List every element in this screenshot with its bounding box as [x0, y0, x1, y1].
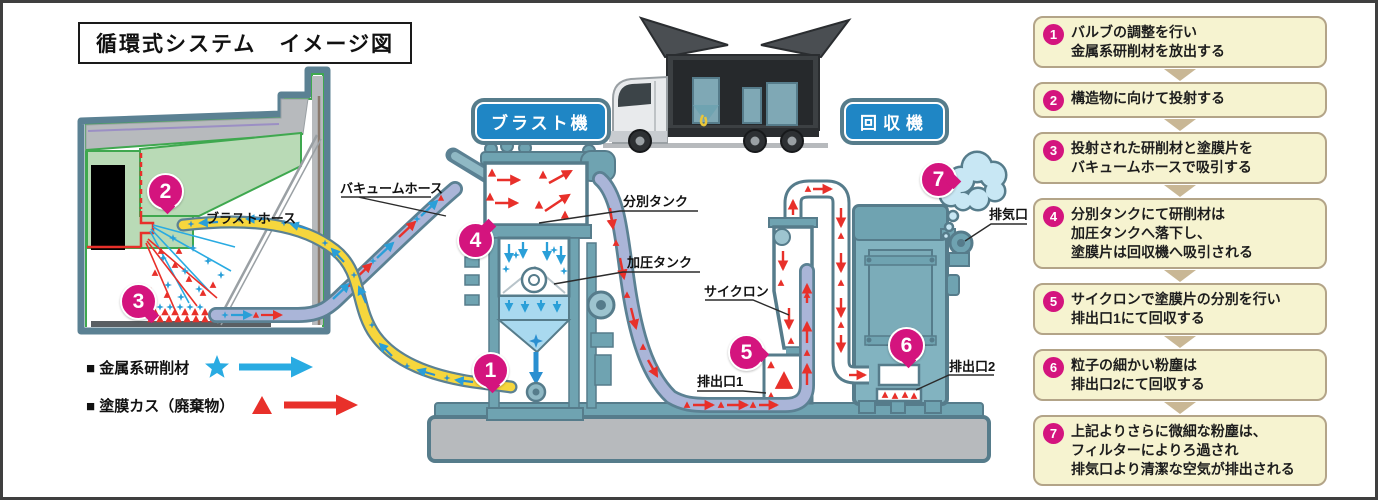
step-number-badge: 6	[1043, 357, 1064, 378]
blasted-structure	[81, 70, 327, 331]
process-steps-panel: 1 バルブの調整を行い 金属系研削材を放出する 2 構造物に向けて投射する 3 …	[1033, 16, 1327, 486]
step-number-badge: 5	[1043, 291, 1064, 312]
label-separation-tank: 分別タンク	[623, 194, 688, 209]
step-number-badge: 4	[1043, 206, 1064, 227]
step-number-badge: 2	[1043, 90, 1064, 111]
process-step-3: 3 投射された研削材と塗膜片を バキュームホースで吸引する	[1033, 132, 1327, 184]
step-text: 構造物に向けて投射する	[1071, 89, 1225, 111]
star-and-arrow-icon	[203, 353, 328, 381]
diagram-canvas: 循環式システム イメージ図 ブラスト機 回収機 バキュームホース ブラストホース…	[0, 0, 1378, 500]
process-step-4: 4 分別タンクにて研削材は 加圧タンクへ落下し、 塗膜片は回収機へ吸引される	[1033, 198, 1327, 269]
down-arrow-icon	[1164, 402, 1196, 414]
process-step-1: 1 バルブの調整を行い 金属系研削材を放出する	[1033, 16, 1327, 68]
label-outlet-2: 排出口2	[949, 359, 995, 374]
label-vacuum-hose: バキュームホース	[340, 181, 443, 196]
step-number-badge: 1	[1043, 24, 1064, 45]
blast-machine-plate: ブラスト機	[475, 102, 607, 141]
down-arrow-icon	[1164, 119, 1196, 131]
down-arrow-icon	[1164, 69, 1196, 81]
legend-abrasive: ■ 金属系研削材	[86, 353, 328, 381]
step-text: バルブの調整を行い 金属系研削材を放出する	[1071, 23, 1225, 61]
process-step-7: 7 上記よりさらに微細な粉塵は、 フィルターによりろ過され 排気口より清潔な空気…	[1033, 415, 1327, 486]
diagram-marker-6: 6	[888, 327, 925, 364]
diagram-marker-7: 7	[920, 161, 957, 198]
step-text: 粒子の細かい粉塵は 排出口2にて回収する	[1071, 356, 1205, 394]
equipment-truck	[603, 18, 849, 152]
step-text: サイクロンで塗膜片の分別を行い 排出口1にて回収する	[1071, 290, 1281, 328]
diagram-marker-2: 2	[147, 173, 184, 210]
page-title: 循環式システム イメージ図	[78, 22, 412, 64]
process-step-2: 2 構造物に向けて投射する	[1033, 82, 1327, 118]
system-diagram-art	[3, 3, 1033, 500]
outlet-2-box	[877, 365, 921, 401]
label-exhaust-port: 排気口	[989, 207, 1028, 222]
step-number-badge: 7	[1043, 423, 1064, 444]
process-step-5: 5 サイクロンで塗膜片の分別を行い 排出口1にて回収する	[1033, 283, 1327, 335]
triangle-and-arrow-icon	[248, 391, 373, 419]
diagram-marker-1: 1	[472, 352, 509, 389]
step-text: 分別タンクにて研削材は 加圧タンクへ落下し、 塗膜片は回収機へ吸引される	[1071, 205, 1253, 262]
down-arrow-icon	[1164, 185, 1196, 197]
diagram-marker-4: 4	[457, 222, 494, 259]
step-text: 上記よりさらに微細な粉塵は、 フィルターによりろ過され 排気口より清潔な空気が排…	[1071, 422, 1295, 479]
label-blast-hose: ブラストホース	[206, 211, 296, 226]
process-step-6: 6 粒子の細かい粉塵は 排出口2にて回収する	[1033, 349, 1327, 401]
label-outlet-1: 排出口1	[697, 374, 743, 389]
down-arrow-icon	[1164, 336, 1196, 348]
legend-waste-label: ■ 塗膜カス（廃棄物）	[86, 395, 234, 416]
diagram-marker-5: 5	[728, 334, 765, 371]
diagram-marker-3: 3	[120, 283, 157, 320]
step-number-badge: 3	[1043, 140, 1064, 161]
step-text: 投射された研削材と塗膜片を バキュームホースで吸引する	[1071, 139, 1253, 177]
recovery-machine-plate: 回収機	[844, 102, 945, 141]
label-cyclone: サイクロン	[704, 284, 769, 299]
legend-waste: ■ 塗膜カス（廃棄物）	[86, 391, 373, 419]
label-pressure-tank: 加圧タンク	[627, 255, 692, 270]
down-arrow-icon	[1164, 270, 1196, 282]
legend-abrasive-label: ■ 金属系研削材	[86, 357, 189, 378]
